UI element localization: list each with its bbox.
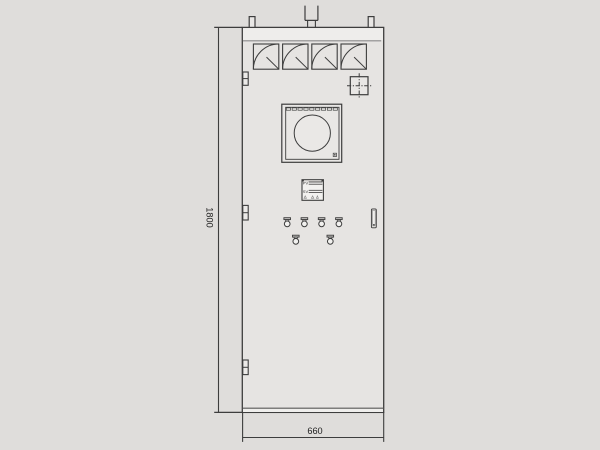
- svg-text:SV: SV: [303, 189, 309, 194]
- svg-text:1800: 1800: [204, 207, 214, 227]
- svg-text:660: 660: [307, 426, 322, 436]
- svg-text:PV: PV: [303, 181, 309, 186]
